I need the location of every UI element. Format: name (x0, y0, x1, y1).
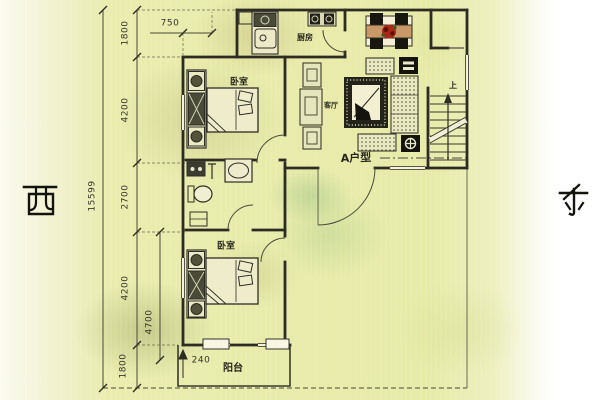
room-label-living: 客厅 (324, 103, 338, 110)
balcony-wall-arrow (179, 350, 187, 378)
east-character (560, 185, 587, 215)
dining-table-set (366, 13, 412, 49)
sofa-top (366, 58, 394, 74)
dim-chain-3: 2700 (122, 185, 131, 210)
dim-top-offset: 750 (161, 20, 180, 29)
sofa-bottom (358, 134, 396, 151)
sofa-right (391, 76, 418, 133)
bathroom-fixtures (187, 159, 252, 226)
floor-plan-page: { "compass": { "west": "西", "east": "东" … (0, 0, 600, 400)
dim-chain-2: 4200 (122, 98, 131, 123)
side-table-bottom (401, 135, 420, 152)
room-label-balcony: 阳台 (223, 364, 243, 374)
room-label-bedroom-upper: 卧室 (230, 79, 248, 88)
kitchen-fixtures (239, 12, 336, 54)
living-room-furniture (300, 57, 420, 152)
dim-chain-1: 1800 (122, 21, 131, 46)
bedroom-lower-furniture (187, 250, 258, 318)
dim-left-total: 15599 (89, 180, 98, 211)
room-label-bedroom-lower: 卧室 (217, 243, 235, 252)
dim-inner-depth: 4700 (146, 310, 155, 335)
room-label-kitchen: 厨房 (297, 34, 313, 42)
west-character (24, 187, 56, 214)
unit-type-label: A户型 (341, 152, 372, 164)
dim-chain-4: 4200 (122, 276, 131, 301)
staircase (430, 93, 466, 160)
side-table-top (399, 57, 418, 74)
dim-balcony-wall: 240 (192, 357, 211, 366)
living-room-rug (344, 77, 388, 128)
stairs-up-label: 上 (449, 82, 457, 90)
dim-chain-5: 1800 (120, 354, 129, 379)
